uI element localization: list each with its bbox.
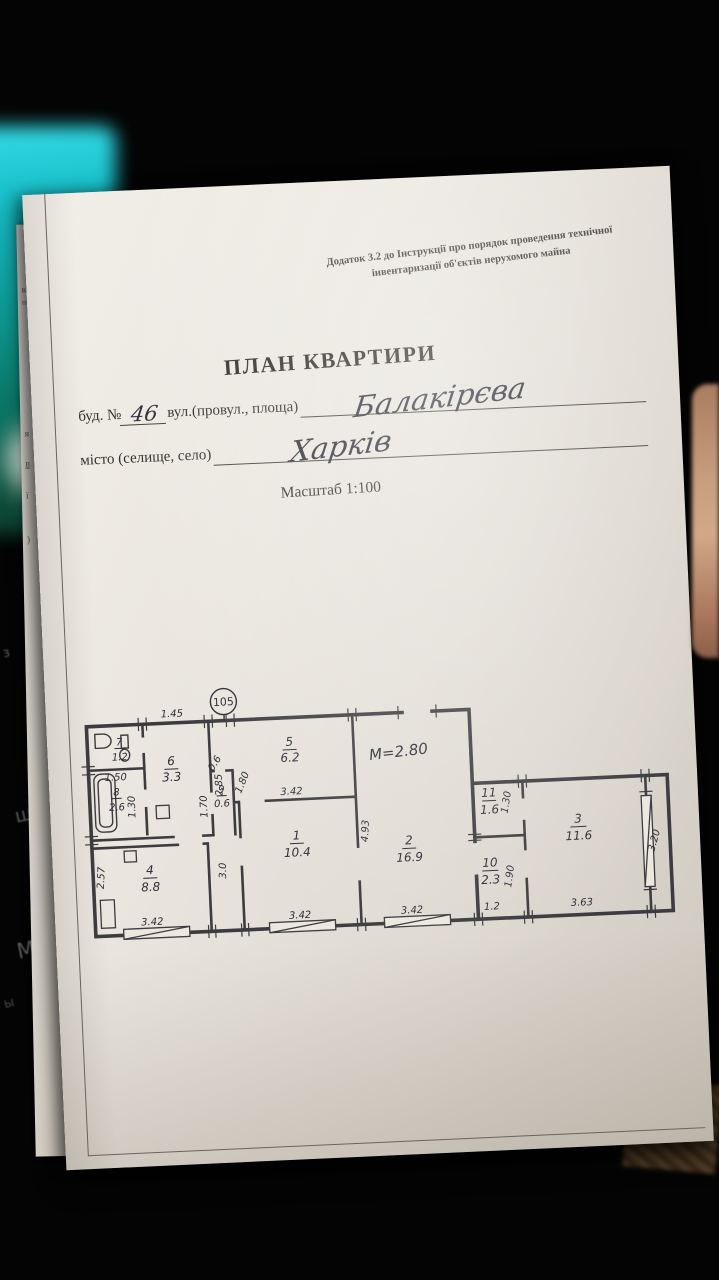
svg-text:8.8: 8.8: [141, 880, 161, 895]
svg-text:2.6: 2.6: [109, 802, 125, 814]
appendix-note: Додаток 3.2 до Інструкції про порядок пр…: [295, 219, 646, 292]
svg-text:7: 7: [116, 737, 123, 748]
edge-text: в: [25, 459, 30, 470]
street-underline: Балакірєва: [300, 379, 647, 418]
svg-text:3: 3: [574, 811, 582, 825]
svg-text:1.80: 1.80: [233, 770, 252, 795]
svg-text:3.42: 3.42: [401, 905, 424, 917]
street-name-handwritten: Балакірєва: [353, 376, 528, 420]
svg-text:4: 4: [146, 863, 154, 877]
svg-text:1.70: 1.70: [199, 795, 211, 818]
svg-text:5: 5: [285, 734, 293, 748]
document-page: Додаток 3.2 до Інструкції про порядок пр…: [22, 166, 714, 1170]
svg-text:1: 1: [292, 828, 300, 842]
scale-label: Масштаб 1:100: [36, 463, 626, 518]
svg-text:3.63: 3.63: [571, 897, 594, 909]
svg-text:6.2: 6.2: [280, 750, 300, 765]
vent-boxes: [96, 805, 174, 928]
city-underline: Харків: [213, 423, 648, 466]
svg-text:8: 8: [113, 787, 120, 798]
photo-of-floor-plan-document: з ш К М ы кої ня я в ї ) Додаток 3.2 до …: [0, 0, 719, 1280]
svg-text:1.45: 1.45: [161, 708, 184, 720]
svg-text:3.0: 3.0: [218, 863, 229, 879]
edge-text: ї: [26, 491, 29, 502]
keyboard-key: ы: [3, 995, 16, 1012]
svg-text:1.2: 1.2: [484, 901, 500, 913]
svg-text:2.3: 2.3: [481, 872, 501, 887]
svg-text:М=2.80: М=2.80: [368, 739, 429, 764]
svg-text:1.50: 1.50: [104, 772, 127, 784]
edge-text: я: [25, 429, 30, 440]
apartment-number: 105: [210, 688, 237, 721]
room-labels: 110.4 216.9 311.6 48.8 56.2 63.3 71.2 82…: [106, 716, 595, 904]
svg-text:3.42: 3.42: [289, 910, 312, 922]
svg-text:1.6: 1.6: [480, 802, 500, 817]
svg-text:3.42: 3.42: [280, 786, 303, 798]
svg-text:3.42: 3.42: [141, 917, 164, 929]
sink-icon: [95, 734, 112, 749]
svg-text:2: 2: [405, 833, 413, 847]
svg-text:2.85: 2.85: [214, 773, 226, 796]
city-name-handwritten: Харків: [289, 428, 393, 464]
hand-fingers: [692, 384, 719, 658]
street-label: вул.(провул., площа): [167, 399, 299, 424]
city-row: місто (селище, село) Харків: [80, 423, 648, 472]
svg-text:10.4: 10.4: [284, 845, 311, 860]
apartment-number-text: 105: [213, 695, 235, 709]
svg-text:4.93: 4.93: [360, 820, 372, 843]
building-label: буд. №: [78, 407, 122, 428]
floor-plan: 105 110.4 216.9 311.6 48.8 56.2 63.3 71.…: [71, 664, 683, 979]
svg-text:1.2: 1.2: [112, 752, 128, 764]
building-number-handwritten: 46: [120, 404, 169, 426]
svg-text:1.30: 1.30: [127, 795, 139, 818]
svg-text:6: 6: [167, 754, 176, 768]
edge-text: ): [27, 535, 31, 546]
svg-text:2.57: 2.57: [96, 866, 108, 889]
svg-text:11.6: 11.6: [565, 828, 593, 843]
page-border-frame: [44, 164, 705, 1156]
svg-text:11: 11: [481, 785, 497, 800]
svg-text:1.90: 1.90: [503, 865, 517, 888]
floor-plan-svg: 105 110.4 216.9 311.6 48.8 56.2 63.3 71.…: [71, 664, 683, 979]
city-label: місто (селище, село): [80, 447, 212, 472]
keyboard-key: з: [2, 645, 12, 661]
building-street-row: буд. № 46 вул.(провул., площа) Балакірєв…: [78, 379, 646, 428]
svg-text:1.30: 1.30: [500, 790, 514, 814]
svg-text:0.6: 0.6: [214, 798, 230, 810]
svg-text:10: 10: [482, 855, 498, 870]
svg-text:16.9: 16.9: [396, 850, 423, 865]
svg-text:3.3: 3.3: [162, 770, 182, 785]
